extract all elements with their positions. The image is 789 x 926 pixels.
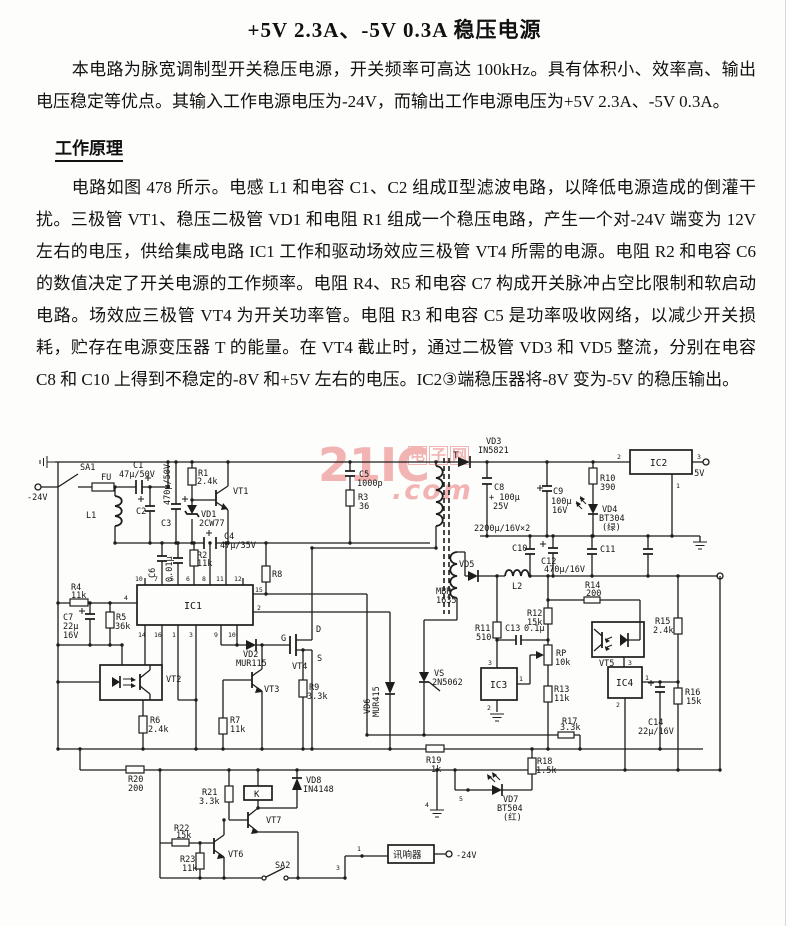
schematic-label: 2.4k [653,626,673,636]
schematic-label: 讯响器 [393,849,422,861]
schematic-label: 1k [431,765,441,775]
schematic-label: 11k [182,864,197,874]
diode-vd2 [246,640,256,650]
schematic-label: 2CW77 [199,519,225,529]
schematic-label: IC4 [616,678,633,689]
schematic-label: G [281,634,286,644]
schematic-label: 11k [554,694,569,704]
neg5v-terminal [703,459,709,465]
schematic-label: 470μ/16V [544,565,585,575]
schematic-label: 510 [476,633,491,643]
schematic-label: 1 [357,845,361,853]
schematic-label: 11k [197,559,212,569]
thyristor-vs [419,672,429,682]
potentiometer-rp [544,645,552,665]
schematic-label: 1 [676,482,680,490]
schematic-label: 22μ/16V [638,727,674,737]
schematic-label: VT5 [599,659,614,669]
schematic-label: 36 [359,502,369,512]
schematic-label: C10 [512,544,527,554]
schematic-label: -24V [456,851,476,861]
schematic-label: 11k [230,725,245,735]
schematic-label: 4 [425,801,429,809]
body-paragraph: 电路如图 478 所示。电感 L1 和电容 C1、C2 组成Ⅱ型滤波电路，以降低… [36,172,756,396]
input-terminal [35,484,41,490]
schematic-label: 15k [686,697,701,707]
schematic-label: 8 [202,575,206,583]
schematic-svg: SA1FU-24VC147μ/50V470μ/50VL1C2C3R12.4kVT… [0,436,789,926]
schematic-label: 3 [189,631,193,639]
schematic-label: 200 [128,784,143,794]
schematic-label: 2.4k [148,725,168,735]
schematic-label: C11 [600,545,615,555]
schematic-label: 36k [115,622,130,632]
schematic-label: 2 [487,704,491,712]
schematic-label: VD5 [459,560,474,570]
schematic-label: SA1 [80,463,95,473]
schematic-label: 1000p [357,479,383,489]
schematic-label: 3 [488,659,492,667]
schematic-label: 11 [216,575,224,583]
schematic-label: 9 [214,631,218,639]
schematic-label: L2 [512,582,522,592]
schematic-label: VT2 [166,675,181,685]
schematic-label: 1 [519,675,523,683]
intro-paragraph: 本电路为脉宽调制型开关稳压电源，开关频率可高达 100kHz。具有体积小、效率高… [36,54,756,118]
schematic-label: S [317,654,322,664]
schematic-label: 2 [617,453,621,461]
schematic-label: IC3 [490,680,507,691]
schematic-label: T [453,451,459,461]
schematic-label: 3 [336,864,340,872]
schematic-label: 3.3k [199,797,219,807]
schematic-label: 1 [645,674,649,682]
diode-vd3 [458,457,470,467]
schematic-label: 16 [154,631,162,639]
optocoupler-vt2-box [100,665,162,700]
schematic-label: -24V [27,493,47,503]
page-title: +5V 2.3A、-5V 0.3A 稳压电源 [0,0,789,44]
schematic-label: C13 [505,624,520,634]
schematic-label: 47μ/50V [119,470,155,480]
schematic-label: (红) [503,812,522,823]
schematic-label: 15 [255,586,263,594]
book-page: +5V 2.3A、-5V 0.3A 稳压电源 本电路为脉宽调制型开关稳压电源，开… [0,0,789,926]
schematic-label: MUR415 [372,686,382,717]
schematic-label: R8 [272,570,282,580]
schematic-label: VT6 [228,850,243,860]
diode-vd5 [468,571,478,581]
schematic-label: L1 [86,511,96,521]
schematic-label: 1.5k [536,766,556,776]
schematic-label: 200 [586,589,601,599]
schematic-label: 2N5062 [432,678,463,688]
schematic-label: 2200μ/16V×2 [474,524,530,534]
schematic-label: 3 [697,453,701,461]
schematic-label: 3.3k [307,692,327,702]
schematic-label: C3 [161,519,171,529]
led-vd7 [492,785,502,795]
schematic-label: IC1 [184,601,202,612]
schematic-label: 10k [555,658,570,668]
schematic-label: 0.1μ [524,624,544,634]
diode-vd8 [292,778,302,790]
schematic-label: 2.4k [197,477,217,487]
schematic-label: 14 [138,631,146,639]
schematic-label: C2 [136,507,146,517]
schematic-label: 390 [600,483,615,493]
potentiometer-wiper-arrow [536,651,544,659]
schematic-label: 2 [257,604,261,612]
schematic-label: 10 [228,631,236,639]
schematic-label: 5 [459,795,463,803]
schematic-label: SA2 [275,861,290,871]
schematic-label: 15k [176,831,191,841]
schematic-label: 25V [493,502,508,512]
schematic-label: D [316,625,321,635]
schematic-label: -5V [689,469,704,479]
schematic-label: C9 [553,487,563,497]
schematic-label: IN5821 [478,446,509,456]
schematic-label: MUR115 [236,659,267,669]
schematic-label: 6 [186,575,190,583]
schematic-label: 16V [63,631,78,641]
schematic-label: 7 [154,575,158,583]
schematic-label: 12 [234,575,242,583]
schematic-label: 2 [616,701,620,709]
diode-vd6 [385,682,395,694]
schematic-label: 10 [135,575,143,583]
schematic-label: VT1 [233,487,248,497]
schematic-label: K [254,790,260,800]
schematic-label: FU [101,473,111,483]
zener-vd1 [187,505,197,514]
schematic-label: 3.3k [560,723,580,733]
schematic-label: VT3 [264,685,279,695]
schematic-label: 5 [170,575,174,583]
schematic-label: C8 [494,483,504,493]
schematic-label: (绿) [602,522,621,533]
section-heading: 工作原理 [55,134,123,162]
schematic-label: 470μ/50V [163,464,173,505]
schematic-label: IC2 [650,458,667,469]
schematic-label: IN4148 [303,785,334,795]
circuit-diagram-figure: 21IC 电子网 .com [0,436,789,926]
schematic-label: 1 [172,631,176,639]
schematic-label: VT7 [266,816,281,826]
schematic-label: 1635 [436,596,456,606]
schematic-label: 16V [552,506,567,516]
led-vd4 [588,504,598,514]
schematic-label: VT4 [292,662,307,672]
schematic-label: 4 [124,594,128,602]
schematic-label: 47μ/35V [220,541,256,551]
fuse-fu [92,483,114,491]
schematic-label: 11k [71,591,86,601]
schematic-label: 3 [628,659,632,667]
buzzer-terminal [446,851,452,857]
